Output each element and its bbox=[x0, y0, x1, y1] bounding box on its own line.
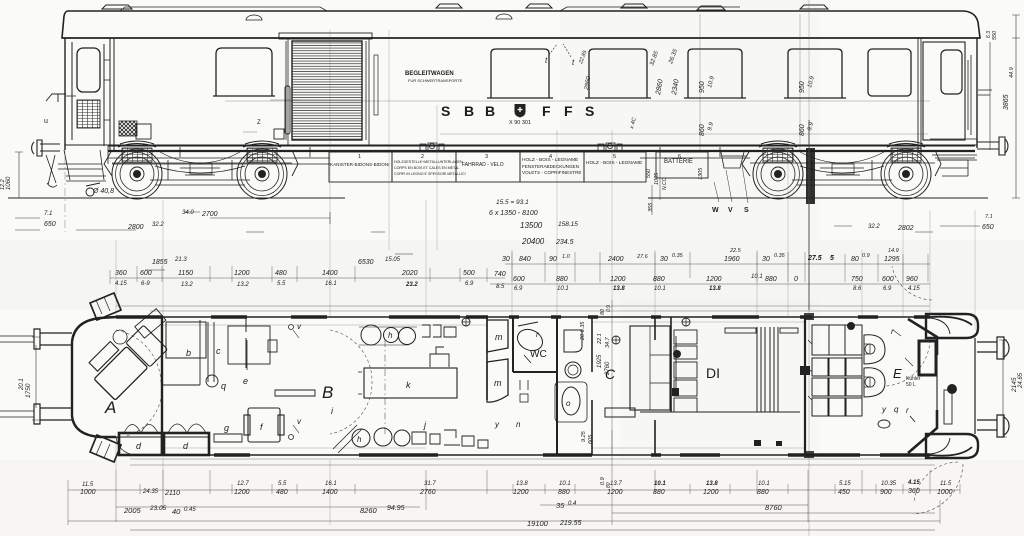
svg-text:15.5 = 93.1: 15.5 = 93.1 bbox=[496, 199, 529, 206]
svg-text:HOLZGESTELLE+METALLUNTERLAGEN: HOLZGESTELLE+METALLUNTERLAGEN bbox=[394, 160, 463, 164]
svg-text:20.1: 20.1 bbox=[19, 378, 25, 391]
svg-text:2700: 2700 bbox=[201, 211, 218, 218]
svg-text:r: r bbox=[536, 330, 539, 339]
svg-text:1005: 1005 bbox=[654, 172, 660, 185]
svg-text:1295: 1295 bbox=[884, 256, 900, 263]
svg-text:1200: 1200 bbox=[610, 276, 626, 283]
svg-text:30: 30 bbox=[502, 256, 510, 263]
svg-text:880: 880 bbox=[556, 276, 568, 283]
svg-text:5: 5 bbox=[830, 255, 834, 262]
svg-text:c: c bbox=[216, 346, 221, 356]
svg-text:22.1: 22.1 bbox=[597, 333, 603, 345]
svg-text:8260: 8260 bbox=[360, 506, 378, 515]
svg-text:24.65: 24.65 bbox=[1018, 372, 1024, 389]
svg-text:r: r bbox=[891, 327, 894, 336]
svg-text:X 90 301: X 90 301 bbox=[509, 120, 531, 126]
svg-text:13.8: 13.8 bbox=[516, 481, 528, 487]
svg-text:35: 35 bbox=[556, 501, 565, 510]
svg-text:480: 480 bbox=[275, 270, 287, 277]
svg-text:6 x 1350 - 8100: 6 x 1350 - 8100 bbox=[489, 210, 538, 217]
svg-text:13.2: 13.2 bbox=[237, 282, 249, 288]
svg-text:11.5: 11.5 bbox=[82, 482, 94, 488]
svg-text:F: F bbox=[564, 103, 573, 119]
svg-text:10.1: 10.1 bbox=[758, 481, 770, 487]
svg-text:5: 5 bbox=[613, 154, 616, 160]
svg-text:Ø 40,8: Ø 40,8 bbox=[92, 188, 114, 195]
svg-text:5.5: 5.5 bbox=[277, 281, 286, 287]
svg-text:1: 1 bbox=[358, 154, 361, 160]
svg-text:k: k bbox=[406, 380, 411, 390]
svg-text:13.2: 13.2 bbox=[181, 282, 193, 288]
svg-text:0.9: 0.9 bbox=[606, 305, 612, 312]
svg-text:W: W bbox=[712, 207, 719, 214]
svg-text:13.8: 13.8 bbox=[613, 286, 625, 292]
svg-text:2020: 2020 bbox=[401, 270, 418, 277]
svg-text:KANISTER-BIDONS-BIDONI: KANISTER-BIDONS-BIDONI bbox=[330, 162, 389, 167]
svg-text:600: 600 bbox=[882, 276, 894, 283]
svg-text:VOLETS - COPRIFINESTRE: VOLETS - COPRIFINESTRE bbox=[522, 170, 581, 175]
svg-text:B: B bbox=[485, 103, 495, 119]
svg-text:Z: Z bbox=[257, 120, 261, 126]
svg-text:550: 550 bbox=[646, 168, 652, 178]
svg-text:34.7: 34.7 bbox=[605, 336, 611, 348]
svg-text:m: m bbox=[494, 378, 502, 388]
svg-text:32.2: 32.2 bbox=[152, 222, 164, 228]
svg-text:880: 880 bbox=[653, 276, 665, 283]
svg-text:E: E bbox=[893, 366, 902, 381]
svg-text:2145: 2145 bbox=[1011, 377, 1018, 393]
svg-text:g: g bbox=[224, 423, 229, 433]
svg-text:10.1: 10.1 bbox=[559, 481, 571, 487]
svg-text:e: e bbox=[243, 376, 248, 386]
svg-text:1.0: 1.0 bbox=[562, 254, 571, 260]
svg-text:q: q bbox=[221, 381, 226, 391]
svg-text:10.1: 10.1 bbox=[557, 286, 569, 292]
svg-text:1060: 1060 bbox=[6, 176, 12, 190]
svg-text:740: 740 bbox=[494, 271, 506, 278]
svg-text:13500: 13500 bbox=[520, 221, 543, 230]
svg-text:CORPI IN LEGNO E SPESSORI META: CORPI IN LEGNO E SPESSORI METALLICI bbox=[394, 172, 466, 176]
svg-text:V: V bbox=[728, 207, 733, 214]
svg-text:h: h bbox=[388, 331, 393, 340]
svg-text:S: S bbox=[585, 103, 594, 119]
svg-text:0: 0 bbox=[794, 276, 798, 283]
svg-text:2005: 2005 bbox=[123, 506, 142, 515]
svg-text:13.8: 13.8 bbox=[709, 286, 721, 292]
svg-text:12.2: 12.2 bbox=[0, 179, 6, 190]
svg-text:11.5: 11.5 bbox=[940, 481, 952, 487]
svg-text:BATTERIE: BATTERIE bbox=[664, 159, 693, 165]
svg-text:605: 605 bbox=[588, 434, 594, 444]
svg-text:0.35: 0.35 bbox=[774, 253, 786, 259]
svg-text:600: 600 bbox=[140, 270, 152, 277]
svg-text:1855: 1855 bbox=[152, 259, 168, 266]
svg-text:S: S bbox=[744, 207, 749, 214]
svg-text:h: h bbox=[357, 435, 362, 444]
svg-text:40: 40 bbox=[172, 507, 181, 516]
svg-text:1925: 1925 bbox=[597, 354, 603, 368]
svg-text:550: 550 bbox=[992, 30, 998, 40]
svg-text:1200: 1200 bbox=[234, 270, 250, 277]
svg-text:6.9: 6.9 bbox=[883, 286, 892, 292]
svg-text:23.2: 23.2 bbox=[405, 282, 418, 288]
svg-text:13.8: 13.8 bbox=[706, 481, 718, 487]
svg-text:30: 30 bbox=[660, 256, 668, 263]
svg-text:2802: 2802 bbox=[897, 225, 914, 232]
svg-text:FENSTERABDECKUNGEN: FENSTERABDECKUNGEN bbox=[522, 164, 579, 169]
svg-text:360: 360 bbox=[908, 488, 920, 495]
svg-text:8760: 8760 bbox=[765, 503, 783, 512]
svg-text:10.35: 10.35 bbox=[881, 481, 897, 487]
svg-text:355: 355 bbox=[648, 202, 654, 212]
svg-text:8.6: 8.6 bbox=[853, 286, 862, 292]
svg-text:1960: 1960 bbox=[724, 256, 740, 263]
svg-text:80: 80 bbox=[851, 256, 859, 263]
svg-text:b: b bbox=[186, 348, 191, 358]
svg-text:0.45: 0.45 bbox=[184, 507, 196, 513]
svg-text:4.15: 4.15 bbox=[907, 480, 920, 486]
svg-text:500: 500 bbox=[463, 270, 475, 277]
svg-text:10.1: 10.1 bbox=[654, 286, 666, 292]
svg-text:3865: 3865 bbox=[1003, 94, 1010, 110]
svg-text:0.35: 0.35 bbox=[672, 253, 684, 259]
svg-text:DI: DI bbox=[706, 365, 720, 381]
svg-text:0.9: 0.9 bbox=[862, 253, 870, 259]
svg-text:10.1: 10.1 bbox=[654, 481, 666, 487]
svg-text:4.15: 4.15 bbox=[115, 281, 127, 287]
svg-text:HOLZ - BOIS - LEGNAME: HOLZ - BOIS - LEGNAME bbox=[586, 160, 642, 166]
svg-text:FAHRRAD - VELO: FAHRRAD - VELO bbox=[462, 162, 504, 168]
svg-text:CORPS EN BOIS ET CALES EN META: CORPS EN BOIS ET CALES EN METAL bbox=[394, 166, 459, 170]
svg-text:1200: 1200 bbox=[706, 276, 722, 283]
svg-text:50 L: 50 L bbox=[906, 382, 916, 388]
svg-text:960: 960 bbox=[906, 276, 918, 283]
svg-text:2110: 2110 bbox=[164, 490, 180, 497]
svg-text:19100: 19100 bbox=[527, 519, 549, 528]
svg-text:FUR SCHWERTRANSPORTE: FUR SCHWERTRANSPORTE bbox=[408, 78, 463, 83]
svg-text:20400: 20400 bbox=[521, 237, 545, 246]
svg-text:7.1: 7.1 bbox=[985, 214, 993, 220]
svg-text:BEGLEITWAGEN: BEGLEITWAGEN bbox=[405, 71, 454, 77]
svg-text:27.5: 27.5 bbox=[807, 255, 822, 262]
svg-text:94.95: 94.95 bbox=[387, 505, 405, 512]
svg-text:2800: 2800 bbox=[127, 224, 144, 231]
svg-text:5.5: 5.5 bbox=[278, 481, 287, 487]
svg-text:360: 360 bbox=[115, 270, 127, 277]
svg-text:u: u bbox=[44, 118, 48, 125]
svg-text:6530: 6530 bbox=[358, 259, 374, 266]
svg-text:750: 750 bbox=[851, 276, 863, 283]
svg-text:6-9: 6-9 bbox=[141, 281, 150, 287]
svg-text:6.9: 6.9 bbox=[514, 286, 523, 292]
svg-text:F: F bbox=[542, 103, 551, 119]
svg-text:n: n bbox=[516, 420, 521, 429]
svg-text:6.3: 6.3 bbox=[986, 31, 992, 38]
svg-text:4.15: 4.15 bbox=[908, 286, 920, 292]
svg-text:22.5: 22.5 bbox=[729, 248, 742, 254]
svg-text:B: B bbox=[322, 383, 333, 402]
svg-text:S: S bbox=[441, 103, 450, 119]
svg-text:6.9: 6.9 bbox=[465, 281, 474, 287]
svg-text:r: r bbox=[906, 406, 909, 415]
svg-text:16.1: 16.1 bbox=[325, 281, 337, 287]
svg-text:23.05: 23.05 bbox=[149, 505, 167, 512]
svg-text:HOLZ - BOIS - LEGNAME: HOLZ - BOIS - LEGNAME bbox=[522, 157, 578, 163]
svg-text:16.1: 16.1 bbox=[325, 481, 337, 487]
svg-text:12.7: 12.7 bbox=[237, 481, 249, 487]
svg-text:880: 880 bbox=[765, 276, 777, 283]
svg-text:2400: 2400 bbox=[607, 256, 624, 263]
svg-text:600: 600 bbox=[513, 276, 525, 283]
svg-text:5.15: 5.15 bbox=[839, 481, 851, 487]
svg-text:B: B bbox=[464, 103, 474, 119]
svg-text:44.9: 44.9 bbox=[1009, 67, 1015, 78]
svg-text:1750: 1750 bbox=[25, 383, 32, 398]
svg-text:A: A bbox=[104, 398, 116, 417]
svg-text:650: 650 bbox=[44, 221, 56, 228]
svg-text:q: q bbox=[894, 405, 899, 414]
svg-text:20 0.35: 20 0.35 bbox=[580, 321, 586, 341]
svg-text:3: 3 bbox=[485, 154, 488, 160]
svg-text:m: m bbox=[495, 332, 503, 342]
svg-text:158.15: 158.15 bbox=[558, 221, 578, 228]
svg-text:30: 30 bbox=[762, 256, 770, 263]
svg-text:7.1: 7.1 bbox=[44, 211, 52, 217]
svg-text:o: o bbox=[566, 399, 571, 408]
svg-text:2760: 2760 bbox=[605, 361, 611, 376]
svg-text:90: 90 bbox=[549, 256, 557, 263]
svg-text:8.5: 8.5 bbox=[496, 284, 505, 290]
svg-text:650: 650 bbox=[982, 224, 994, 231]
svg-text:27.6: 27.6 bbox=[636, 254, 649, 260]
svg-text:32.2: 32.2 bbox=[868, 224, 880, 230]
svg-text:15.05: 15.05 bbox=[385, 257, 401, 263]
svg-text:0.4: 0.4 bbox=[568, 501, 577, 507]
svg-text:N.CC: N.CC bbox=[662, 177, 668, 190]
svg-text:34.0: 34.0 bbox=[182, 210, 194, 216]
svg-text:840: 840 bbox=[519, 256, 531, 263]
svg-text:1150: 1150 bbox=[178, 270, 193, 277]
svg-text:21.3: 21.3 bbox=[174, 257, 187, 263]
svg-text:234.5: 234.5 bbox=[555, 239, 574, 246]
svg-text:1305: 1305 bbox=[698, 167, 704, 180]
svg-text:14.9: 14.9 bbox=[888, 248, 899, 254]
svg-text:9.25: 9.25 bbox=[581, 430, 587, 442]
